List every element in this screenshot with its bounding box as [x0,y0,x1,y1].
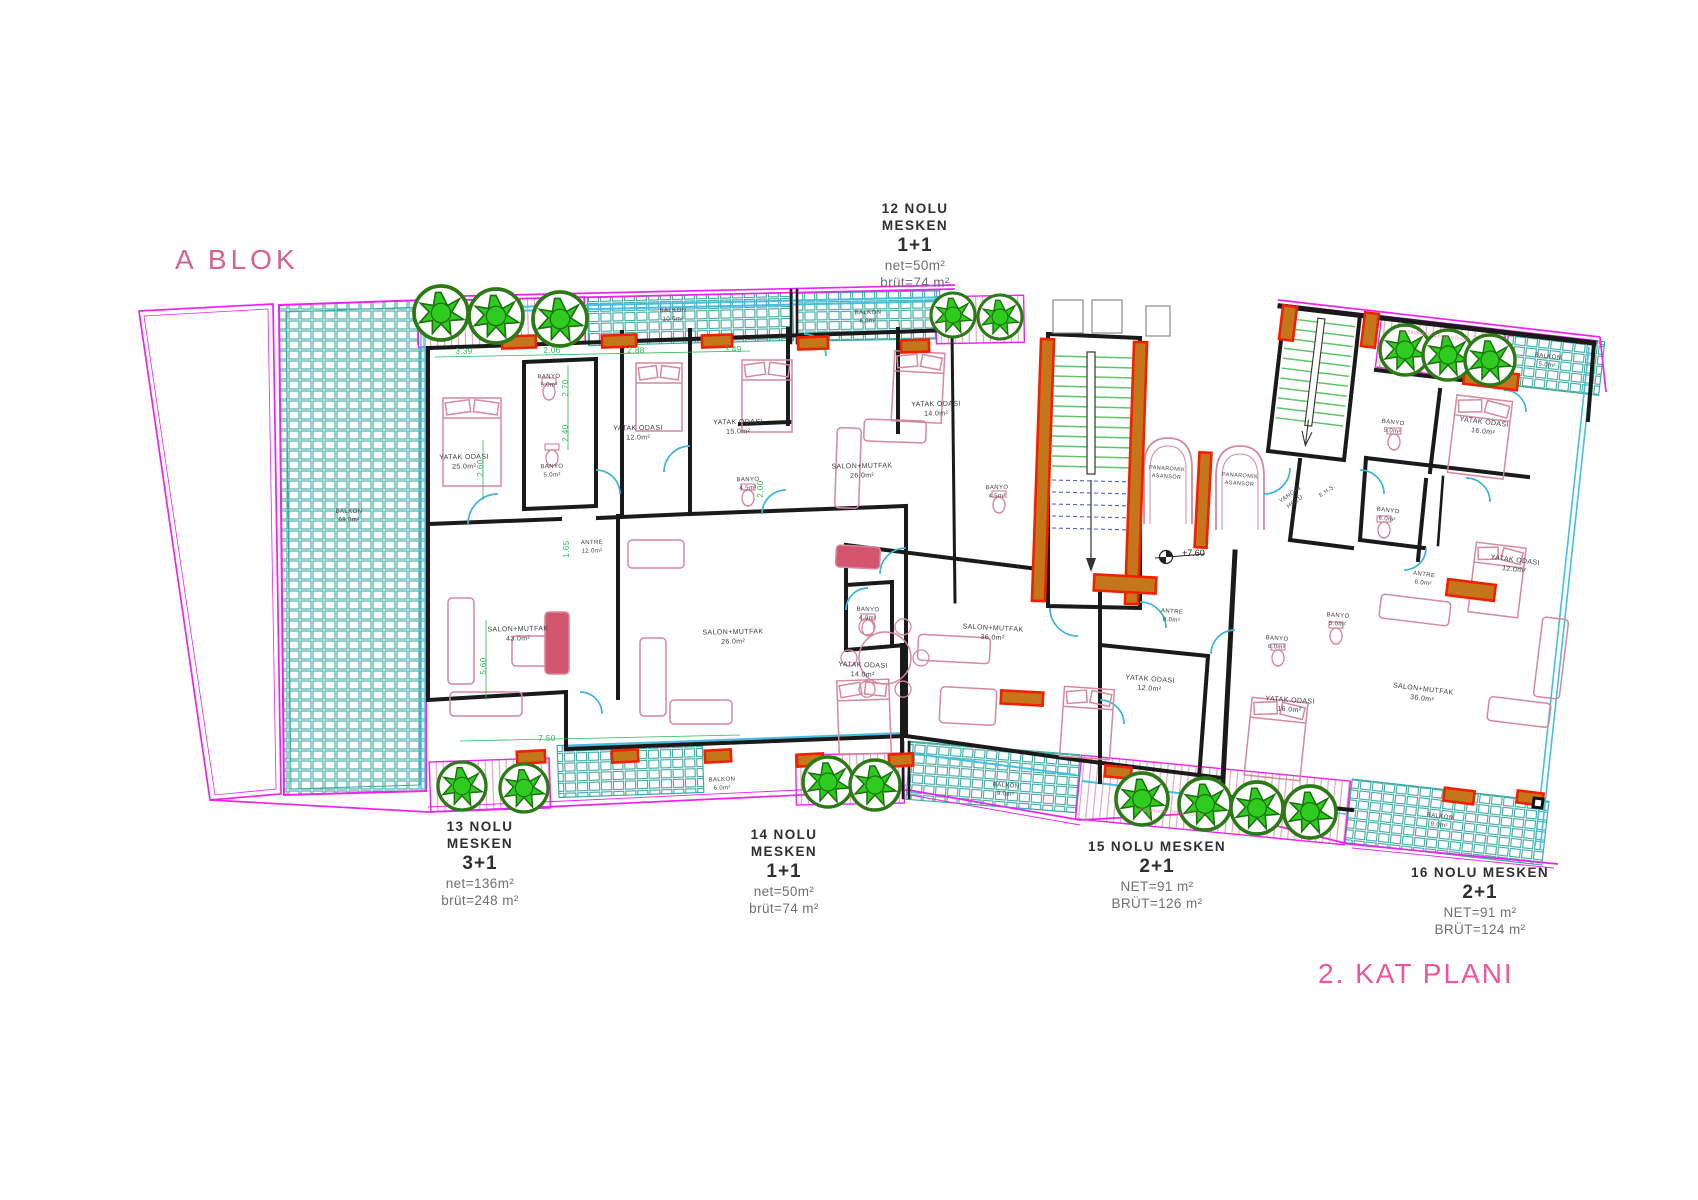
dimension-label: 2.00 [756,480,765,497]
terrace-balcony [279,300,426,795]
apartment-type: 1+1 [704,861,864,883]
apartment-type: 2+1 [1370,882,1590,904]
apartment-net-area: NET=91 m² [1047,878,1267,895]
floor-plan-drawing: YATAK ODASI25.0m²BANYO5.0m²BANYO5.0m²YAT… [0,0,1698,1200]
apartment-name: 15 NOLU MESKEN [1047,838,1267,855]
kitchen-unit [545,612,569,674]
structural-column [612,749,639,762]
tree-icon [978,295,1022,339]
dimension-label: 5.60 [479,657,488,674]
apartment-gross-area: BRÜT=124 m² [1370,921,1590,938]
apartment-net-area: net=50m² [704,883,864,900]
apartment-label-12: 12 NOLU MESKEN 1+1 net=50m² brüt=74 m² [835,200,995,291]
apartment-net-area: net=50m² [835,257,995,274]
apartment-label-15: 15 NOLU MESKEN 2+1 NET=91 m² BRÜT=126 m² [1047,838,1267,912]
dimension-label: 2.70 [561,379,570,396]
tree-icon [1465,335,1515,385]
plan-title: 2. KAT PLANI [1318,958,1514,990]
tree-icon [850,760,900,810]
apartment-gross-area: brüt=248 m² [400,892,560,909]
structural-column [705,749,732,762]
structural-column [1001,690,1044,705]
dimension-label: 7.50 [538,734,555,743]
apartment-gross-area: brüt=74 m² [704,900,864,917]
apartment-label-14: 14 NOLU MESKEN 1+1 net=50m² brüt=74 m² [704,826,864,917]
dimension-label: 2.06 [543,346,560,355]
dimension-label: 2.40 [561,424,570,441]
tree-icon [1284,786,1336,838]
apartment-type: 3+1 [400,853,560,875]
structural-column [798,336,828,349]
structural-column [1443,788,1474,805]
structural-column [901,340,929,353]
dimension-label: 1.65 [562,540,571,557]
structural-column [517,750,546,763]
structural-column [1094,574,1157,593]
block-title: A BLOK [175,244,299,276]
apartment-type: 1+1 [835,235,995,257]
apartment-label-16: 16 NOLU MESKEN 2+1 NET=91 m² BRÜT=124 m² [1370,864,1590,938]
dimension-label: 3.49 [724,345,741,354]
apartment-name: 14 NOLU [704,826,864,843]
tree-icon [438,762,486,810]
apartment-type: 2+1 [1047,856,1267,878]
apartment-name: 13 NOLU [400,818,560,835]
apartment-gross-area: BRÜT=126 m² [1047,895,1267,912]
structural-column [889,753,914,766]
tree-icon [500,764,548,812]
corner-marker [1531,796,1544,809]
elevation-label: +7.60 [1182,548,1205,558]
site-boundary [139,304,281,800]
structural-column [1361,312,1379,347]
dimension-label: 2.60 [476,459,485,476]
dimension-label: 3.39 [455,347,472,356]
apartment-name: 16 NOLU MESKEN [1370,864,1590,881]
tree-icon [1179,778,1231,830]
tree-icon [1116,773,1168,825]
apartment-name: MESKEN [704,843,864,860]
tree-icon [803,757,853,807]
apartment-net-area: NET=91 m² [1370,904,1590,921]
apartment-gross-area: brüt=74 m² [835,274,995,291]
apartment-net-area: net=136m² [400,875,560,892]
structural-column [1279,305,1297,340]
apartment-name: 12 NOLU [835,200,995,217]
tree-icon [1231,782,1283,834]
tree-icon [931,293,975,337]
tree-icon [414,286,468,340]
apartment-label-13: 13 NOLU MESKEN 3+1 net=136m² brüt=248 m² [400,818,560,909]
tree-icon [533,292,587,346]
kitchen-unit [835,545,880,569]
tree-icon [469,289,523,343]
floor-plan-sheet: YATAK ODASI25.0m²BANYO5.0m²BANYO5.0m²YAT… [0,0,1698,1200]
apartment-name: MESKEN [835,217,995,234]
apartment-name: MESKEN [400,835,560,852]
